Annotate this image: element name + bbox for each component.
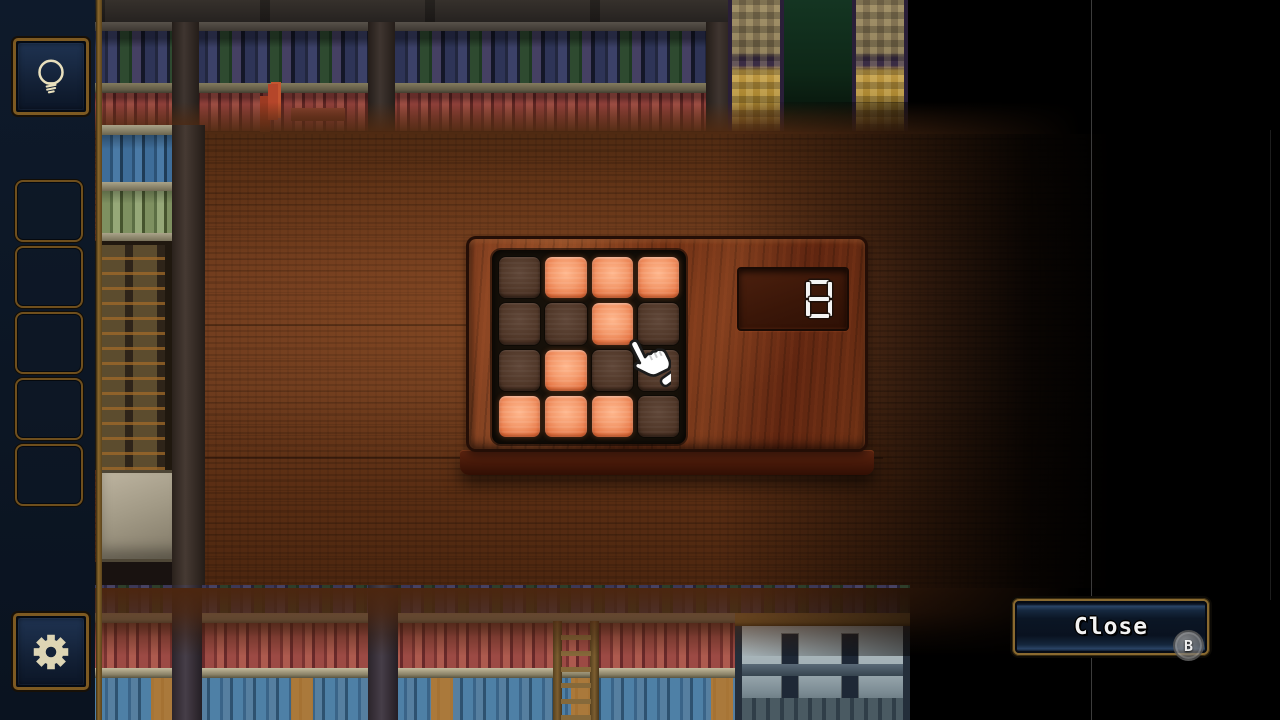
sidebar	[0, 0, 95, 720]
inventory-slot-4[interactable]	[15, 378, 83, 440]
gamepad-b-letter: B	[1184, 637, 1193, 655]
grid-cell-r1c2[interactable]	[545, 257, 586, 298]
grid-cell-r4c3[interactable]	[592, 396, 633, 437]
inventory-slot-5[interactable]	[15, 444, 83, 506]
grid-cell-r3c1[interactable]	[499, 350, 540, 391]
grid-cell-r1c4[interactable]	[638, 257, 679, 298]
inventory-slot-2[interactable]	[15, 246, 83, 308]
grid-cell-r3c2[interactable]	[545, 350, 586, 391]
bookshelf-left-column	[95, 125, 205, 585]
grid-cell-r2c2[interactable]	[545, 303, 586, 344]
hint-button[interactable]	[13, 38, 89, 115]
grid-cell-r3c4[interactable]	[638, 350, 679, 391]
counter-digit	[806, 280, 832, 318]
grid-cell-r3c3[interactable]	[592, 350, 633, 391]
book-row	[101, 135, 173, 182]
puzzle-grid	[492, 250, 686, 444]
press-bar	[742, 664, 903, 676]
grid-cell-r2c3[interactable]	[592, 303, 633, 344]
shelf-ladder	[101, 245, 165, 470]
inventory-slot-1[interactable]	[15, 180, 83, 242]
table-top-edge	[95, 102, 1132, 134]
shelf-board	[99, 125, 175, 135]
table-bottom-edge	[95, 588, 1132, 656]
puzzle-board	[466, 236, 868, 452]
inventory-slot-3[interactable]	[15, 312, 83, 374]
grid-cell-r2c1[interactable]	[499, 303, 540, 344]
close-button-label: Close	[1074, 614, 1148, 640]
scene-seam-line	[1270, 130, 1271, 600]
shelf-shadow	[95, 562, 175, 585]
grid-cell-r4c1[interactable]	[499, 396, 540, 437]
settings-button[interactable]	[13, 613, 89, 690]
press-slats	[742, 698, 903, 720]
bookshelf-top-frame	[95, 0, 735, 22]
close-button[interactable]: Close B	[1012, 598, 1210, 656]
grid-cell-r1c1[interactable]	[499, 257, 540, 298]
grid-cell-r1c3[interactable]	[592, 257, 633, 298]
gamepad-b-badge: B	[1173, 630, 1204, 661]
counter-display	[737, 267, 849, 331]
puzzle-board-lip	[460, 450, 874, 475]
book-row	[101, 191, 173, 233]
lightbulb-icon	[18, 43, 84, 110]
grid-cell-r2c4[interactable]	[638, 303, 679, 344]
shelf-post	[172, 125, 205, 585]
gear-icon	[18, 618, 84, 685]
shelf-frame-edge	[96, 0, 102, 720]
game-screen: Close B	[0, 0, 1280, 720]
grid-cell-r4c2[interactable]	[545, 396, 586, 437]
grid-cell-r4c4[interactable]	[638, 396, 679, 437]
